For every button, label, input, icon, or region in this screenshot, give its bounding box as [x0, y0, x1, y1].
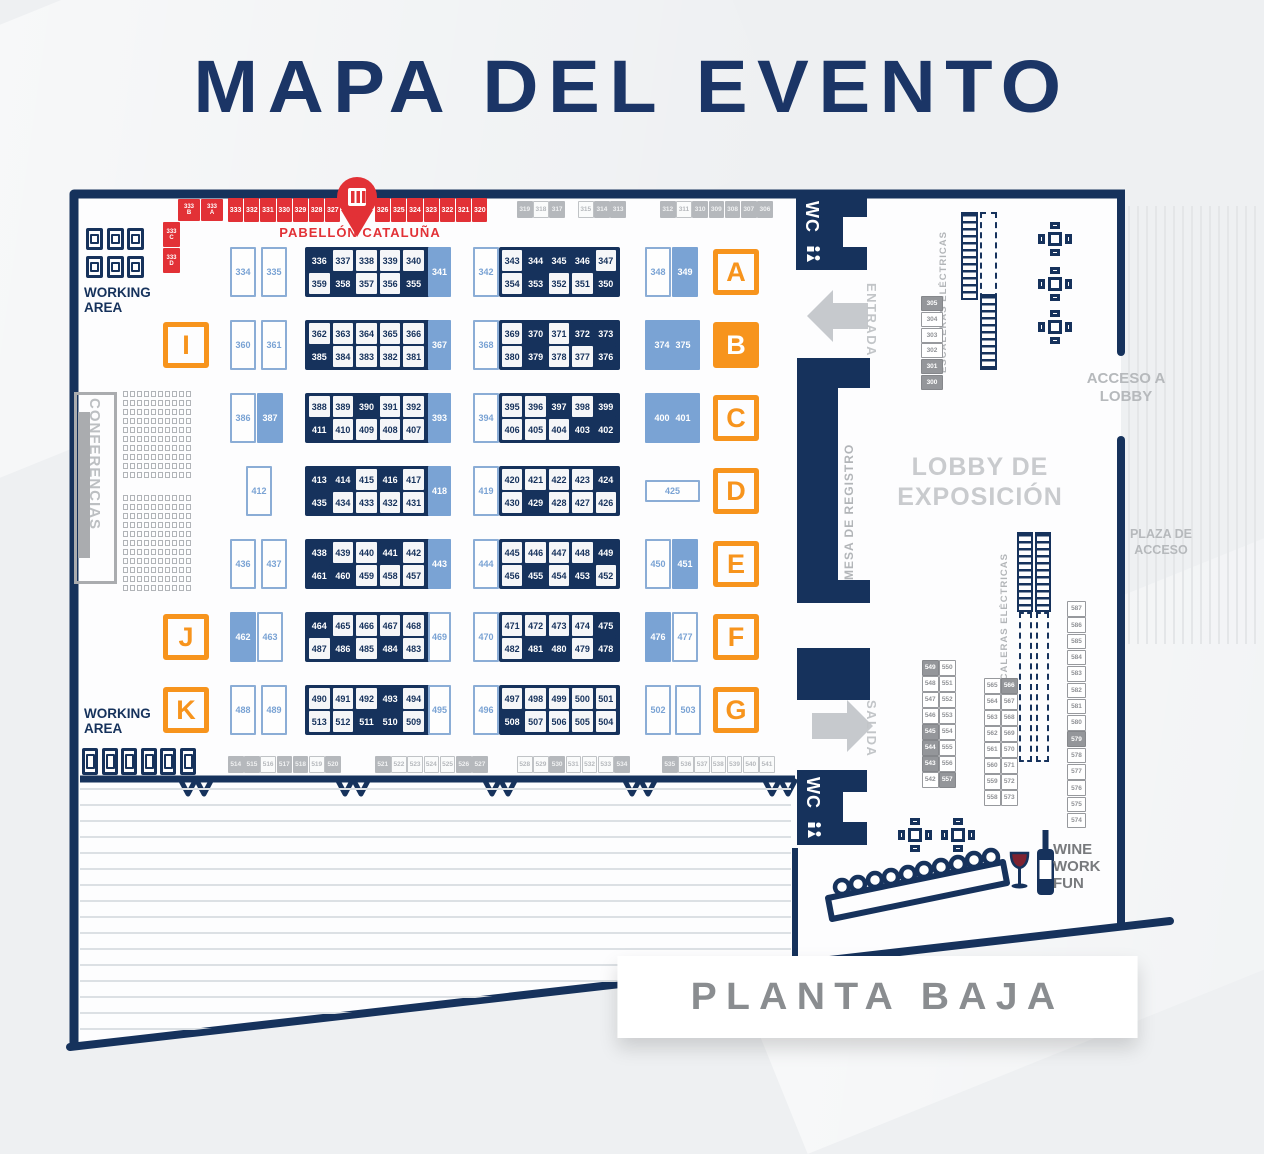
booth-448[interactable]: 448 — [572, 542, 592, 563]
booth-514[interactable]: 514 — [228, 756, 244, 773]
booth-380[interactable]: 380 — [502, 346, 522, 367]
booth-548[interactable]: 548 — [922, 676, 939, 692]
booth-420[interactable]: 420 — [502, 469, 522, 490]
booth-333-D[interactable]: 333D — [163, 248, 180, 273]
booth-369[interactable]: 369 — [502, 323, 522, 344]
booth-461[interactable]: 461 — [309, 565, 330, 586]
booth-346[interactable]: 346 — [572, 250, 592, 271]
booth-534[interactable]: 534 — [614, 756, 630, 773]
booth-582[interactable]: 582 — [1067, 683, 1086, 699]
booth-324[interactable]: 324 — [407, 198, 422, 222]
booth-504[interactable]: 504 — [596, 711, 616, 732]
booth-383[interactable]: 383 — [356, 346, 377, 367]
booth-584[interactable]: 584 — [1067, 650, 1086, 666]
booth-526[interactable]: 526 — [456, 756, 472, 773]
booth-488[interactable]: 488 — [230, 685, 256, 735]
booth-558[interactable]: 558 — [984, 790, 1001, 806]
booth-481[interactable]: 481 — [525, 638, 545, 659]
booth-386[interactable]: 386 — [230, 393, 256, 443]
booth-394[interactable]: 394 — [473, 393, 499, 443]
booth-334[interactable]: 334 — [230, 247, 256, 297]
booth-447[interactable]: 447 — [549, 542, 569, 563]
booth-578[interactable]: 578 — [1067, 748, 1086, 764]
booth-418[interactable]: 418 — [428, 466, 451, 516]
booth-467[interactable]: 467 — [380, 615, 401, 636]
booth-472[interactable]: 472 — [525, 615, 545, 636]
booth-561[interactable]: 561 — [984, 742, 1001, 758]
booth-387[interactable]: 387 — [257, 393, 283, 443]
booth-328[interactable]: 328 — [309, 198, 324, 222]
row-letter-D[interactable]: D — [713, 468, 759, 514]
booth-495[interactable]: 495 — [428, 685, 451, 735]
booth-425[interactable]: 425 — [645, 480, 700, 502]
booth-402[interactable]: 402 — [596, 419, 616, 440]
booth-486[interactable]: 486 — [333, 638, 354, 659]
booth-585[interactable]: 585 — [1067, 634, 1086, 650]
booth-325[interactable]: 325 — [391, 198, 406, 222]
booth-547[interactable]: 547 — [922, 692, 939, 708]
row-letter-B[interactable]: B — [713, 322, 759, 368]
booth-451[interactable]: 451 — [672, 539, 698, 589]
booth-303[interactable]: 303 — [921, 328, 943, 343]
booth-458[interactable]: 458 — [380, 565, 401, 586]
booth-347[interactable]: 347 — [596, 250, 616, 271]
booth-332[interactable]: 332 — [244, 198, 259, 222]
booth-493[interactable]: 493 — [380, 688, 401, 709]
booth-424[interactable]: 424 — [596, 469, 616, 490]
booth-367[interactable]: 367 — [428, 320, 451, 370]
booth-362[interactable]: 362 — [309, 323, 330, 344]
booth-536[interactable]: 536 — [678, 756, 694, 773]
booth-464[interactable]: 464 — [309, 615, 330, 636]
booth-469[interactable]: 469 — [428, 612, 451, 662]
booth-352[interactable]: 352 — [549, 273, 569, 294]
booth-566[interactable]: 566 — [1001, 678, 1018, 694]
booth-401[interactable]: 401 — [676, 413, 691, 423]
booth-364[interactable]: 364 — [356, 323, 377, 344]
booth-475[interactable]: 475 — [596, 615, 616, 636]
booth-333-A[interactable]: 333A — [201, 199, 223, 221]
booth-336[interactable]: 336 — [309, 250, 330, 271]
booth-453[interactable]: 453 — [572, 565, 592, 586]
booth-341[interactable]: 341 — [428, 247, 451, 297]
booth-397[interactable]: 397 — [549, 396, 569, 417]
booth-444[interactable]: 444 — [473, 539, 499, 589]
booth-429[interactable]: 429 — [525, 492, 545, 513]
booth-473[interactable]: 473 — [549, 615, 569, 636]
booth-422[interactable]: 422 — [549, 469, 569, 490]
booth-338[interactable]: 338 — [356, 250, 377, 271]
booth-400[interactable]: 400 — [654, 413, 669, 423]
booth-372[interactable]: 372 — [572, 323, 592, 344]
booth-557[interactable]: 557 — [939, 772, 956, 788]
booth-581[interactable]: 581 — [1067, 699, 1086, 715]
booth-465[interactable]: 465 — [333, 615, 354, 636]
booth-553[interactable]: 553 — [939, 708, 956, 724]
booth-300[interactable]: 300 — [921, 375, 943, 390]
booth-377[interactable]: 377 — [572, 346, 592, 367]
booth-463[interactable]: 463 — [257, 612, 283, 662]
booth-459[interactable]: 459 — [356, 565, 377, 586]
booth-353[interactable]: 353 — [525, 273, 545, 294]
booth-421[interactable]: 421 — [525, 469, 545, 490]
booth-518[interactable]: 518 — [293, 756, 309, 773]
zone-marker-I[interactable]: I — [163, 322, 209, 368]
booth-523[interactable]: 523 — [407, 756, 423, 773]
booth-355[interactable]: 355 — [403, 273, 424, 294]
booth-449[interactable]: 449 — [596, 542, 616, 563]
booth-434[interactable]: 434 — [333, 492, 354, 513]
booth-573[interactable]: 573 — [1001, 790, 1018, 806]
booth-554[interactable]: 554 — [939, 724, 956, 740]
booth-359[interactable]: 359 — [309, 273, 330, 294]
booth-575[interactable]: 575 — [1067, 797, 1086, 813]
booth-586[interactable]: 586 — [1067, 617, 1086, 633]
booth-384[interactable]: 384 — [333, 346, 354, 367]
booth-454[interactable]: 454 — [549, 565, 569, 586]
booth-476[interactable]: 476 — [645, 612, 671, 662]
booth-587[interactable]: 587 — [1067, 601, 1086, 617]
booth-496[interactable]: 496 — [473, 685, 499, 735]
booth-335[interactable]: 335 — [261, 247, 287, 297]
booth-529[interactable]: 529 — [533, 756, 549, 773]
booth-320[interactable]: 320 — [472, 198, 487, 222]
booth-305[interactable]: 305 — [921, 296, 943, 311]
booth-480[interactable]: 480 — [549, 638, 569, 659]
booth-317[interactable]: 317 — [549, 201, 565, 218]
booth-426[interactable]: 426 — [596, 492, 616, 513]
booth-450[interactable]: 450 — [645, 539, 671, 589]
booth-307[interactable]: 307 — [741, 201, 757, 218]
booth-508[interactable]: 508 — [502, 711, 522, 732]
booth-555[interactable]: 555 — [939, 740, 956, 756]
booth-406[interactable]: 406 — [502, 419, 522, 440]
booth-432[interactable]: 432 — [380, 492, 401, 513]
booth-505[interactable]: 505 — [572, 711, 592, 732]
booth-329[interactable]: 329 — [293, 198, 308, 222]
booth-482[interactable]: 482 — [502, 638, 522, 659]
booth-321[interactable]: 321 — [456, 198, 471, 222]
booth-413[interactable]: 413 — [309, 469, 330, 490]
booth-501[interactable]: 501 — [596, 688, 616, 709]
booth-571[interactable]: 571 — [1001, 758, 1018, 774]
booth-354[interactable]: 354 — [502, 273, 522, 294]
booth-407[interactable]: 407 — [403, 419, 424, 440]
booth-404[interactable]: 404 — [549, 419, 569, 440]
booth-350[interactable]: 350 — [596, 273, 616, 294]
booth-363[interactable]: 363 — [333, 323, 354, 344]
booth-577[interactable]: 577 — [1067, 764, 1086, 780]
booth-446[interactable]: 446 — [525, 542, 545, 563]
booth-440[interactable]: 440 — [356, 542, 377, 563]
booth-572[interactable]: 572 — [1001, 774, 1018, 790]
booth-574[interactable]: 574 — [1067, 813, 1086, 829]
booth-452[interactable]: 452 — [596, 565, 616, 586]
booth-358[interactable]: 358 — [333, 273, 354, 294]
booth-345[interactable]: 345 — [549, 250, 569, 271]
booth-530[interactable]: 530 — [549, 756, 565, 773]
booth-483[interactable]: 483 — [403, 638, 424, 659]
booth-439[interactable]: 439 — [333, 542, 354, 563]
booth-375[interactable]: 375 — [676, 340, 691, 350]
booth-313[interactable]: 313 — [610, 201, 626, 218]
booth-542[interactable]: 542 — [922, 772, 939, 788]
booth-326[interactable]: 326 — [375, 198, 390, 222]
booth-544[interactable]: 544 — [922, 740, 939, 756]
booth-525[interactable]: 525 — [440, 756, 456, 773]
row-letter-F[interactable]: F — [713, 614, 759, 660]
booth-389[interactable]: 389 — [333, 396, 354, 417]
booth-337[interactable]: 337 — [333, 250, 354, 271]
booth-519[interactable]: 519 — [309, 756, 325, 773]
booth-301[interactable]: 301 — [921, 359, 943, 374]
booth-502[interactable]: 502 — [645, 685, 671, 735]
booth-366[interactable]: 366 — [403, 323, 424, 344]
booth-330[interactable]: 330 — [277, 198, 292, 222]
booth-361[interactable]: 361 — [261, 320, 287, 370]
booth-331[interactable]: 331 — [260, 198, 275, 222]
booth-484[interactable]: 484 — [380, 638, 401, 659]
booth-348[interactable]: 348 — [645, 247, 671, 297]
booth-388[interactable]: 388 — [309, 396, 330, 417]
booth-405[interactable]: 405 — [525, 419, 545, 440]
booth-580[interactable]: 580 — [1067, 715, 1086, 731]
booth-506[interactable]: 506 — [549, 711, 569, 732]
booth-462[interactable]: 462 — [230, 612, 256, 662]
booth-412[interactable]: 412 — [246, 466, 272, 516]
booth-396[interactable]: 396 — [525, 396, 545, 417]
booth-304[interactable]: 304 — [921, 312, 943, 327]
booth-431[interactable]: 431 — [403, 492, 424, 513]
booth-539[interactable]: 539 — [727, 756, 743, 773]
booth-521[interactable]: 521 — [375, 756, 391, 773]
booth-492[interactable]: 492 — [356, 688, 377, 709]
booth-569[interactable]: 569 — [1001, 726, 1018, 742]
booth-333-C[interactable]: 333C — [163, 222, 180, 247]
booth-433[interactable]: 433 — [356, 492, 377, 513]
booth-563[interactable]: 563 — [984, 710, 1001, 726]
booth-507[interactable]: 507 — [525, 711, 545, 732]
booth-567[interactable]: 567 — [1001, 694, 1018, 710]
booth-400-401[interactable]: 400401 — [645, 393, 700, 443]
booth-565[interactable]: 565 — [984, 678, 1001, 694]
booth-460[interactable]: 460 — [333, 565, 354, 586]
booth-576[interactable]: 576 — [1067, 780, 1086, 796]
booth-308[interactable]: 308 — [725, 201, 741, 218]
booth-374[interactable]: 374 — [654, 340, 669, 350]
booth-403[interactable]: 403 — [572, 419, 592, 440]
row-letter-G[interactable]: G — [713, 687, 759, 733]
booth-391[interactable]: 391 — [380, 396, 401, 417]
booth-494[interactable]: 494 — [403, 688, 424, 709]
booth-437[interactable]: 437 — [261, 539, 287, 589]
booth-516[interactable]: 516 — [260, 756, 276, 773]
booth-339[interactable]: 339 — [380, 250, 401, 271]
booth-445[interactable]: 445 — [502, 542, 522, 563]
booth-479[interactable]: 479 — [572, 638, 592, 659]
booth-564[interactable]: 564 — [984, 694, 1001, 710]
booth-333[interactable]: 333 — [228, 198, 243, 222]
booth-457[interactable]: 457 — [403, 565, 424, 586]
booth-414[interactable]: 414 — [333, 469, 354, 490]
booth-562[interactable]: 562 — [984, 726, 1001, 742]
booth-491[interactable]: 491 — [333, 688, 354, 709]
booth-319[interactable]: 319 — [517, 201, 533, 218]
booth-500[interactable]: 500 — [572, 688, 592, 709]
row-letter-A[interactable]: A — [713, 249, 759, 295]
booth-551[interactable]: 551 — [939, 676, 956, 692]
booth-522[interactable]: 522 — [391, 756, 407, 773]
booth-393[interactable]: 393 — [428, 393, 451, 443]
booth-466[interactable]: 466 — [356, 615, 377, 636]
booth-390[interactable]: 390 — [356, 396, 377, 417]
booth-583[interactable]: 583 — [1067, 666, 1086, 682]
booth-310[interactable]: 310 — [692, 201, 708, 218]
booth-314[interactable]: 314 — [594, 201, 610, 218]
booth-392[interactable]: 392 — [403, 396, 424, 417]
booth-417[interactable]: 417 — [403, 469, 424, 490]
booth-344[interactable]: 344 — [525, 250, 545, 271]
booth-382[interactable]: 382 — [380, 346, 401, 367]
booth-524[interactable]: 524 — [424, 756, 440, 773]
row-letter-C[interactable]: C — [713, 395, 759, 441]
booth-513[interactable]: 513 — [309, 711, 330, 732]
booth-312[interactable]: 312 — [660, 201, 676, 218]
booth-541[interactable]: 541 — [759, 756, 775, 773]
booth-306[interactable]: 306 — [757, 201, 773, 218]
booth-532[interactable]: 532 — [582, 756, 598, 773]
booth-399[interactable]: 399 — [596, 396, 616, 417]
booth-349[interactable]: 349 — [672, 247, 698, 297]
booth-531[interactable]: 531 — [566, 756, 582, 773]
booth-552[interactable]: 552 — [939, 692, 956, 708]
booth-435[interactable]: 435 — [309, 492, 330, 513]
booth-550[interactable]: 550 — [939, 660, 956, 676]
booth-398[interactable]: 398 — [572, 396, 592, 417]
booth-556[interactable]: 556 — [939, 756, 956, 772]
booth-351[interactable]: 351 — [572, 273, 592, 294]
booth-470[interactable]: 470 — [473, 612, 499, 662]
booth-315[interactable]: 315 — [578, 201, 594, 218]
booth-423[interactable]: 423 — [572, 469, 592, 490]
booth-478[interactable]: 478 — [596, 638, 616, 659]
booth-379[interactable]: 379 — [525, 346, 545, 367]
booth-509[interactable]: 509 — [403, 711, 424, 732]
booth-311[interactable]: 311 — [676, 201, 692, 218]
booth-385[interactable]: 385 — [309, 346, 330, 367]
booth-428[interactable]: 428 — [549, 492, 569, 513]
booth-560[interactable]: 560 — [984, 758, 1001, 774]
booth-477[interactable]: 477 — [672, 612, 698, 662]
booth-415[interactable]: 415 — [356, 469, 377, 490]
booth-408[interactable]: 408 — [380, 419, 401, 440]
booth-419[interactable]: 419 — [473, 466, 499, 516]
booth-340[interactable]: 340 — [403, 250, 424, 271]
booth-365[interactable]: 365 — [380, 323, 401, 344]
booth-378[interactable]: 378 — [549, 346, 569, 367]
row-letter-E[interactable]: E — [713, 541, 759, 587]
booth-322[interactable]: 322 — [440, 198, 455, 222]
booth-485[interactable]: 485 — [356, 638, 377, 659]
booth-471[interactable]: 471 — [502, 615, 522, 636]
booth-443[interactable]: 443 — [428, 539, 451, 589]
booth-441[interactable]: 441 — [380, 542, 401, 563]
booth-528[interactable]: 528 — [517, 756, 533, 773]
booth-376[interactable]: 376 — [596, 346, 616, 367]
booth-497[interactable]: 497 — [502, 688, 522, 709]
booth-498[interactable]: 498 — [525, 688, 545, 709]
booth-370[interactable]: 370 — [525, 323, 545, 344]
booth-517[interactable]: 517 — [277, 756, 293, 773]
booth-438[interactable]: 438 — [309, 542, 330, 563]
booth-427[interactable]: 427 — [572, 492, 592, 513]
booth-511[interactable]: 511 — [356, 711, 377, 732]
booth-360[interactable]: 360 — [230, 320, 256, 370]
booth-373[interactable]: 373 — [596, 323, 616, 344]
booth-487[interactable]: 487 — [309, 638, 330, 659]
booth-430[interactable]: 430 — [502, 492, 522, 513]
booth-568[interactable]: 568 — [1001, 710, 1018, 726]
booth-520[interactable]: 520 — [325, 756, 341, 773]
booth-410[interactable]: 410 — [333, 419, 354, 440]
booth-515[interactable]: 515 — [244, 756, 260, 773]
booth-543[interactable]: 543 — [922, 756, 939, 772]
booth-456[interactable]: 456 — [502, 565, 522, 586]
booth-342[interactable]: 342 — [473, 247, 499, 297]
booth-546[interactable]: 546 — [922, 708, 939, 724]
booth-499[interactable]: 499 — [549, 688, 569, 709]
booth-570[interactable]: 570 — [1001, 742, 1018, 758]
booth-343[interactable]: 343 — [502, 250, 522, 271]
booth-436[interactable]: 436 — [230, 539, 256, 589]
booth-490[interactable]: 490 — [309, 688, 330, 709]
booth-333-B[interactable]: 333B — [178, 199, 200, 221]
booth-549[interactable]: 549 — [922, 660, 939, 676]
booth-503[interactable]: 503 — [675, 685, 701, 735]
booth-318[interactable]: 318 — [533, 201, 549, 218]
booth-489[interactable]: 489 — [261, 685, 287, 735]
booth-374-375[interactable]: 374375 — [645, 320, 700, 370]
booth-356[interactable]: 356 — [380, 273, 401, 294]
booth-545[interactable]: 545 — [922, 724, 939, 740]
booth-579[interactable]: 579 — [1067, 731, 1086, 747]
booth-474[interactable]: 474 — [572, 615, 592, 636]
booth-510[interactable]: 510 — [380, 711, 401, 732]
booth-527[interactable]: 527 — [472, 756, 488, 773]
booth-442[interactable]: 442 — [403, 542, 424, 563]
booth-468[interactable]: 468 — [403, 615, 424, 636]
booth-538[interactable]: 538 — [711, 756, 727, 773]
booth-357[interactable]: 357 — [356, 273, 377, 294]
booth-327[interactable]: 327 — [325, 198, 340, 222]
booth-381[interactable]: 381 — [403, 346, 424, 367]
booth-512[interactable]: 512 — [333, 711, 354, 732]
booth-323[interactable]: 323 — [424, 198, 439, 222]
booth-409[interactable]: 409 — [356, 419, 377, 440]
booth-395[interactable]: 395 — [502, 396, 522, 417]
zone-marker-K[interactable]: K — [163, 687, 209, 733]
booth-368[interactable]: 368 — [473, 320, 499, 370]
booth-416[interactable]: 416 — [380, 469, 401, 490]
booth-371[interactable]: 371 — [549, 323, 569, 344]
booth-309[interactable]: 309 — [709, 201, 725, 218]
zone-marker-J[interactable]: J — [163, 614, 209, 660]
booth-535[interactable]: 535 — [662, 756, 678, 773]
booth-411[interactable]: 411 — [309, 419, 330, 440]
booth-455[interactable]: 455 — [525, 565, 545, 586]
booth-559[interactable]: 559 — [984, 774, 1001, 790]
booth-302[interactable]: 302 — [921, 343, 943, 358]
